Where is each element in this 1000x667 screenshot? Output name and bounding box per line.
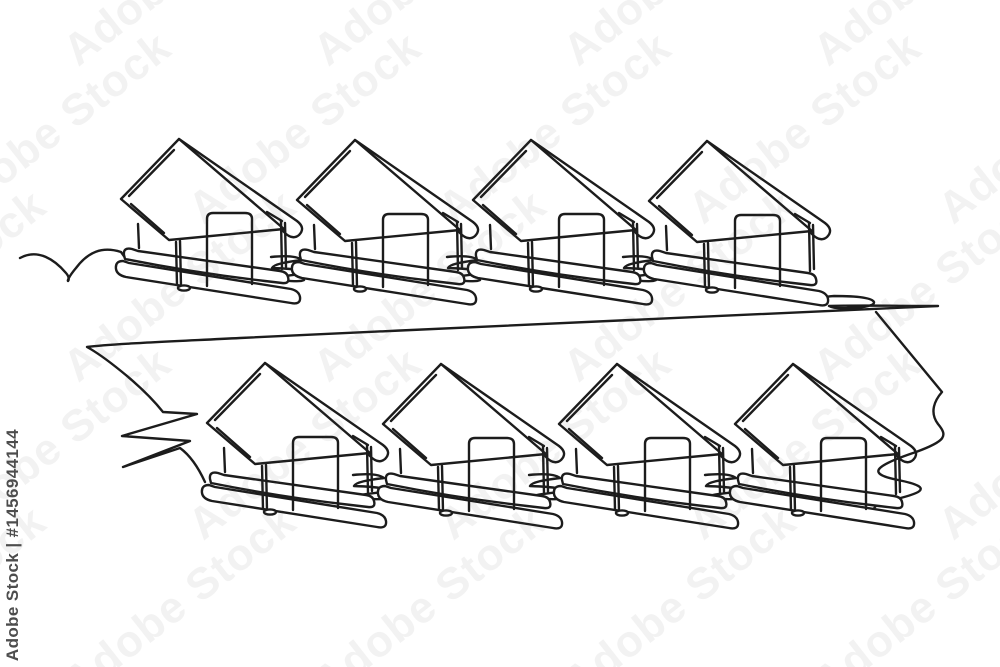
- house-row2-2: [378, 364, 564, 528]
- stock-image-canvas: Adobe StockAdobe StockAdobe StockAdobe S…: [0, 0, 1000, 667]
- house-row2-4: [730, 364, 916, 528]
- house-row2-1: [202, 363, 388, 527]
- house-row1-1: [116, 139, 302, 303]
- house-row1-4: [644, 141, 830, 305]
- house-row2-3: [554, 364, 740, 528]
- house-row1-2: [292, 140, 478, 304]
- line-art-houses-illustration: [0, 0, 1000, 667]
- stock-credit-text: Adobe Stock | #1456944144: [3, 429, 23, 661]
- house-row1-3: [468, 140, 654, 304]
- line-start-wave: [20, 250, 126, 281]
